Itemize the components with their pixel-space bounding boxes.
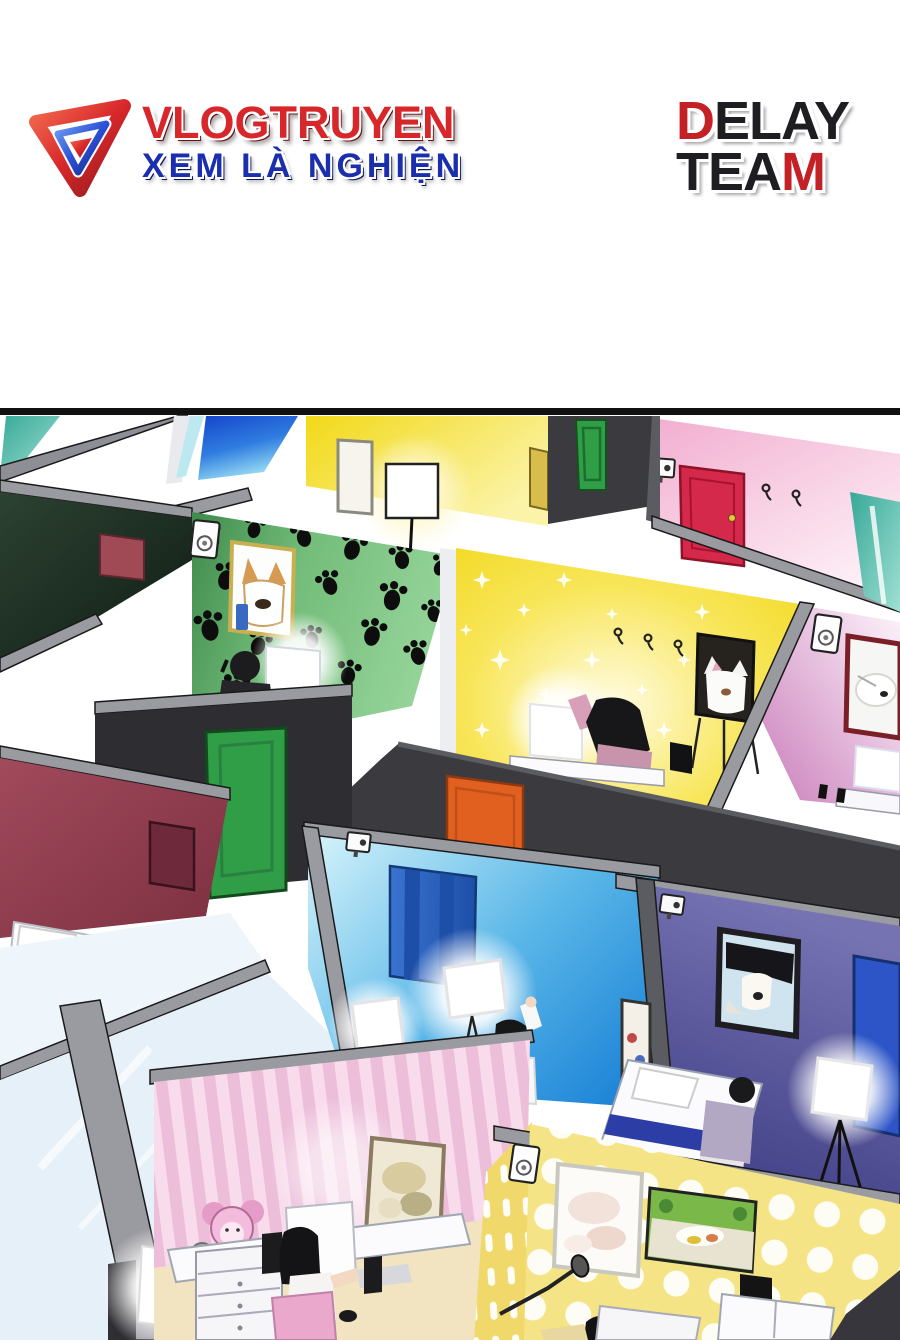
vlogtruyen-triangle-icon [26, 94, 134, 202]
blank-canvas-frame [338, 440, 372, 514]
bottle [236, 604, 248, 630]
person-hair [230, 651, 260, 681]
black-speaker [364, 1256, 382, 1294]
top-dark-wall [548, 416, 652, 524]
wall-speaker-icon [509, 1144, 540, 1183]
panel-top-border [0, 408, 900, 415]
room-pink-stripe [150, 1030, 534, 1340]
pink-chair [272, 1292, 336, 1340]
dog-photo-frame [718, 930, 798, 1036]
framed-picture-soft [554, 1164, 642, 1276]
black-speaker [262, 1232, 282, 1274]
white-dog-portrait [846, 636, 900, 738]
wall-speaker-icon [811, 614, 842, 653]
team-logo-line1: DELAY [676, 96, 849, 147]
comic-panel [0, 408, 900, 1340]
monitor [854, 746, 900, 792]
site-logo-title: VLOGTRUYEN [142, 100, 464, 145]
framed-picture-landscape [646, 1188, 756, 1272]
red-painting [100, 534, 144, 580]
wall-speaker-icon [190, 520, 220, 559]
site-logo-tagline: XEM LÀ NGHIỆN [142, 149, 464, 183]
team-logo-line2: TEAM [676, 147, 849, 198]
black-speaker [670, 742, 692, 774]
comic-reader-page: { "header": { "site_logo": { "title": "V… [0, 0, 900, 1340]
site-logo: VLOGTRUYEN XEM LÀ NGHIỆN [26, 94, 464, 202]
door-knob [729, 515, 736, 522]
comic-panel-art [0, 408, 900, 1340]
person-hair [729, 1077, 755, 1103]
gold-picture-frame-edge [530, 448, 548, 510]
shoe [339, 1310, 357, 1322]
person-body [700, 1100, 754, 1164]
maroon-door [150, 822, 194, 890]
team-logo: DELAY TEAM [676, 96, 849, 198]
